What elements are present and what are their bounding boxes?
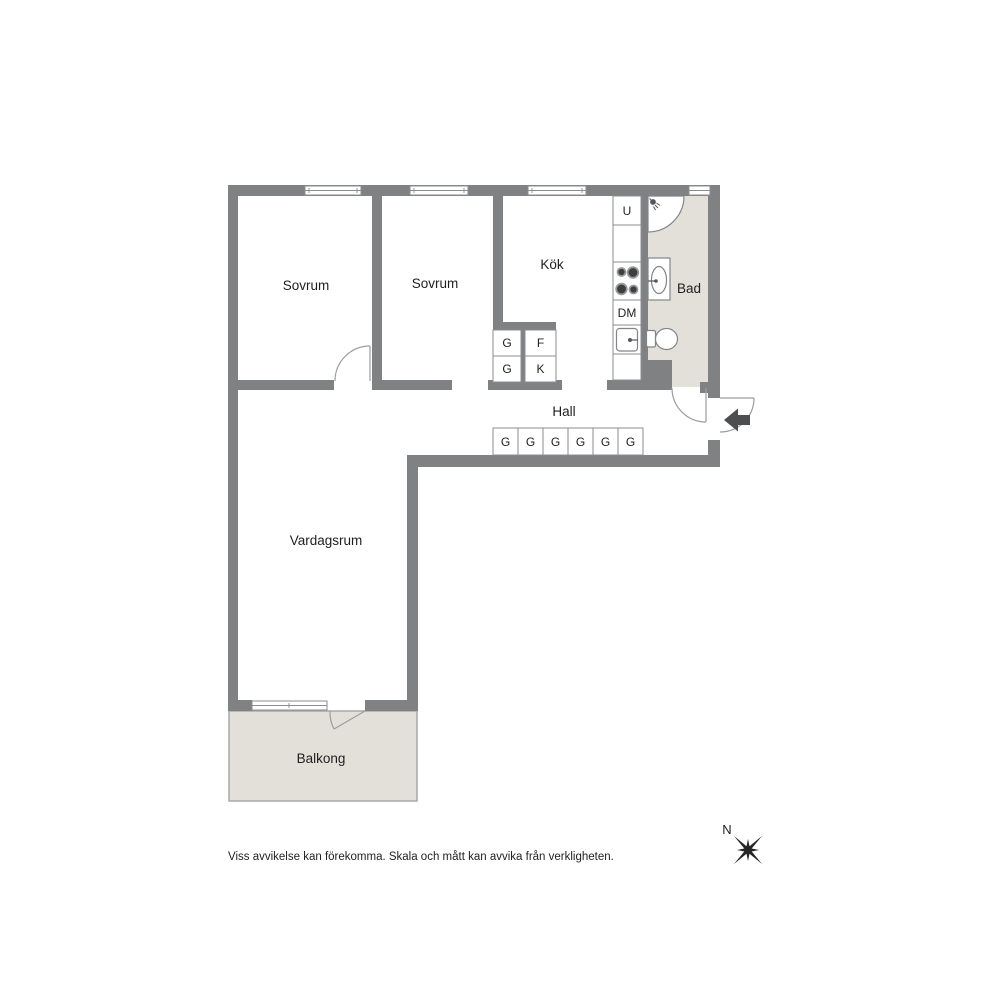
hall-wardrobe-row — [493, 428, 643, 455]
bedroom2-bottom-wall — [372, 380, 452, 390]
bathroom-door — [672, 388, 706, 422]
bathroom-door-jamb — [700, 382, 720, 393]
dishwasher-label: DM — [618, 306, 637, 320]
wardrobe-label: G — [626, 435, 635, 449]
wardrobe-label: G — [501, 435, 510, 449]
room-label-kok: Kök — [540, 257, 564, 272]
cabinet-column-divider — [521, 330, 525, 382]
compass-star-icon — [734, 836, 762, 864]
disclaimer-text: Viss avvikelse kan förekomma. Skala och … — [228, 851, 614, 863]
room-label-sovrum1: Sovrum — [283, 278, 330, 293]
counter-segment-upper — [613, 225, 641, 262]
room-label-bad: Bad — [677, 281, 701, 296]
bedroom2-window — [410, 186, 468, 195]
kitchen-left-wall — [493, 196, 503, 322]
balcony-window — [252, 701, 327, 710]
compass-north-label: N — [722, 822, 731, 837]
compass: N — [722, 822, 762, 864]
cabinet-label-k: K — [536, 362, 544, 376]
livingroom-bottom-wall-right — [365, 700, 418, 711]
kitchen-counter — [613, 196, 641, 380]
bedroom-divider-wall — [372, 196, 382, 380]
livingroom-right-wall — [407, 455, 418, 703]
counter-segment-lower — [613, 354, 641, 380]
room-label-vardagsrum: Vardagsrum — [290, 533, 363, 548]
bedroom1-bottom-wall — [238, 380, 334, 390]
cabinet-label-f: F — [537, 336, 544, 350]
bathroom-sink — [648, 258, 670, 300]
bedroom1-window — [305, 186, 361, 195]
cabinet-label-g2: G — [502, 362, 511, 376]
entry-arrow-icon — [724, 409, 750, 432]
wardrobe-label: G — [551, 435, 560, 449]
livingroom-bottom-wall-left — [228, 700, 252, 711]
kitchen-sink — [617, 329, 639, 352]
hall-bottom-wall — [407, 455, 720, 467]
oven-label: U — [623, 204, 632, 218]
bathroom-bottom-wall — [640, 360, 672, 390]
wardrobe-label: G — [601, 435, 610, 449]
cabinet-cap-wall — [493, 322, 556, 330]
floor-plan: Sovrum Sovrum Kök Bad Hall Vardagsrum Ba… — [0, 0, 992, 992]
room-label-hall: Hall — [552, 404, 575, 419]
top-wall — [228, 185, 720, 196]
floor-plan-page: Sovrum Sovrum Kök Bad Hall Vardagsrum Ba… — [0, 0, 992, 992]
left-wall — [228, 185, 238, 711]
bedroom1-door — [335, 346, 370, 381]
right-wall-upper — [708, 185, 720, 398]
room-label-sovrum2: Sovrum — [412, 276, 459, 291]
wardrobe-label: G — [526, 435, 535, 449]
bathroom-window — [689, 186, 710, 195]
walls — [228, 185, 720, 711]
cabinet-label-g1: G — [502, 336, 511, 350]
wardrobe-label: G — [576, 435, 585, 449]
doors — [330, 346, 754, 729]
room-label-balkong: Balkong — [297, 751, 346, 766]
toilet — [647, 329, 678, 350]
kitchen-window — [528, 186, 586, 195]
